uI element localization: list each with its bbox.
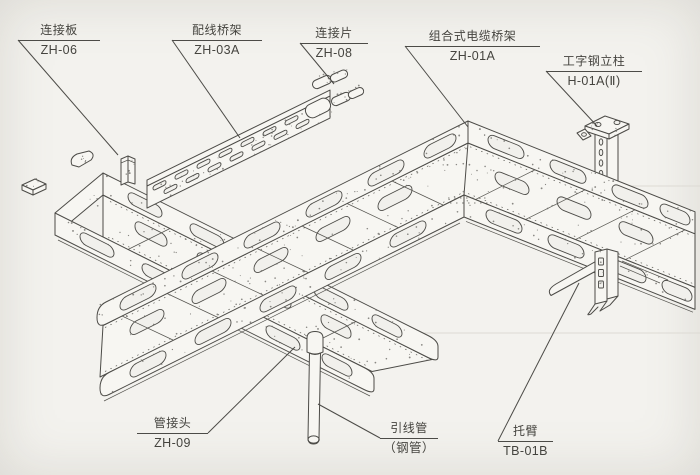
loose-plate-small xyxy=(22,179,46,195)
label-code: ZH-08 xyxy=(300,44,368,61)
label-code: ZH-01A xyxy=(405,47,540,64)
leader-pipe-joint xyxy=(208,347,295,433)
label-code: TB-01B xyxy=(498,442,553,459)
label-code: ZH-09 xyxy=(137,434,208,451)
label-support-arm: 托臂 TB-01B xyxy=(498,424,553,459)
lead-wire-pipe xyxy=(308,353,321,444)
label-wiring-tray: 配线桥架 ZH-03A xyxy=(172,23,262,58)
technical-diagram: 连接板 ZH-06 配线桥架 ZH-03A 连接片 ZH-08 组合式电缆桥架 … xyxy=(0,0,700,475)
leader-lead-pipe xyxy=(318,404,380,438)
label-code: H-01A(Ⅱ) xyxy=(546,72,642,89)
pipe-joint xyxy=(307,332,323,355)
loose-parts xyxy=(22,69,365,208)
label-connection-plate: 连接板 ZH-06 xyxy=(18,23,100,58)
label-assembled-tray: 组合式电缆桥架 ZH-01A xyxy=(405,29,540,64)
label-text: 连接板 xyxy=(18,23,100,41)
label-text: 管接头 xyxy=(137,416,208,434)
label-text: 配线桥架 xyxy=(172,23,262,41)
pipe-joint-and-pipe xyxy=(307,332,323,445)
label-text: 组合式电缆桥架 xyxy=(405,29,540,47)
label-code: ZH-06 xyxy=(18,41,100,58)
label-lead-pipe: 引线管 （钢管） xyxy=(380,421,438,456)
label-code: ZH-03A xyxy=(172,41,262,58)
connection-plate xyxy=(121,156,135,185)
label-code: （钢管） xyxy=(380,439,438,456)
label-pipe-joint: 管接头 ZH-09 xyxy=(137,416,208,451)
label-text: 引线管 xyxy=(380,421,438,439)
label-text: 托臂 xyxy=(498,424,553,442)
label-column: 工字钢立柱 H-01A(Ⅱ) xyxy=(546,54,642,89)
wiring-cable-tray xyxy=(147,90,330,208)
label-text: 工字钢立柱 xyxy=(546,54,642,72)
leader-support-arm xyxy=(498,283,579,441)
label-text: 连接片 xyxy=(300,26,368,44)
label-connection-strip: 连接片 ZH-08 xyxy=(300,26,368,61)
